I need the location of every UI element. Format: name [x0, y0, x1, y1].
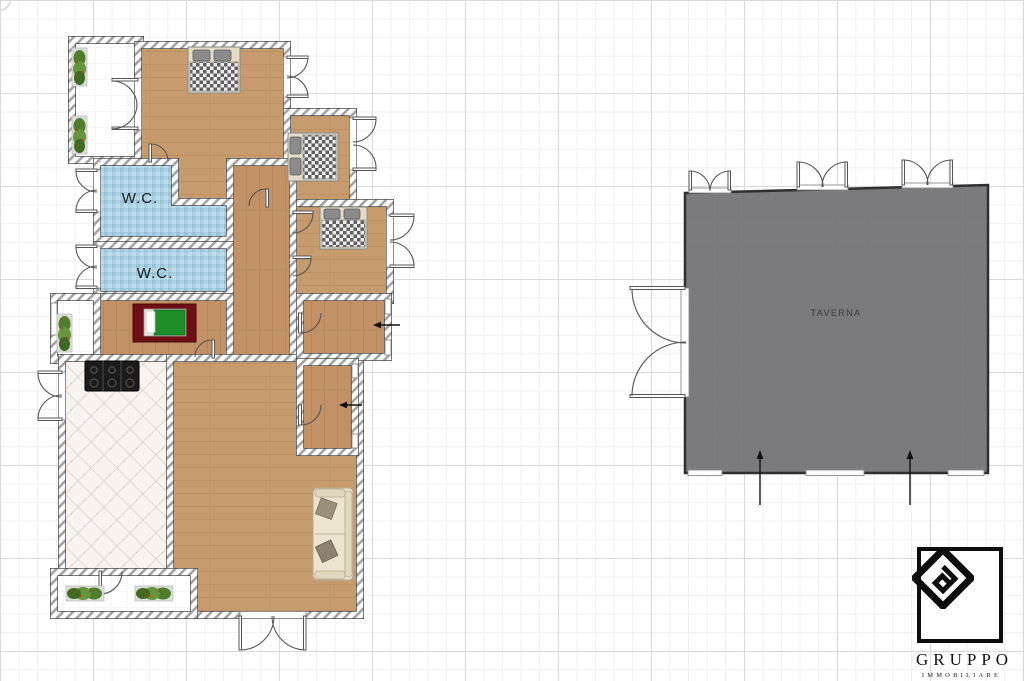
room-corridor — [230, 162, 293, 360]
single-bed-icon-rug-room — [133, 304, 196, 342]
arrow-icon-taverna-2 — [907, 450, 914, 505]
double-bed-icon-bedroom3 — [320, 207, 367, 249]
door-swing-icon-taverna-top-3 — [902, 160, 953, 188]
floorplan-canvas: W.C. W.C. — [0, 0, 1024, 681]
sofa-icon — [313, 488, 353, 580]
taverna-floorplan: TAVERNA — [630, 160, 988, 505]
plant-icon — [135, 586, 173, 601]
logo-monogram-box — [917, 547, 1003, 643]
fg-monogram-icon — [912, 547, 974, 609]
logo-subtitle: IMMOBILIARE — [912, 672, 1008, 679]
door-swing-icon-living-exit — [239, 616, 306, 650]
door-swing-icon-taverna-top-2 — [797, 162, 848, 190]
floorplan-drawing: W.C. W.C. — [0, 0, 1024, 681]
corner-arc-decoration — [0, 0, 10, 10]
arrow-icon-taverna-1 — [757, 450, 764, 505]
taverna-window — [688, 470, 722, 476]
apartment-floorplan: W.C. W.C. — [38, 40, 414, 650]
taverna-room — [685, 185, 988, 473]
room-a — [300, 297, 388, 357]
taverna-window — [948, 470, 984, 476]
double-bed-icon-bedroom2 — [288, 133, 338, 181]
door-swing-icon-taverna-left — [630, 287, 689, 398]
plant-icon — [72, 116, 87, 154]
agency-logo: GRUPPO IMMOBILIARE — [912, 547, 1008, 679]
double-bed-icon-master — [188, 47, 240, 93]
taverna-label: TAVERNA — [811, 308, 862, 318]
plant-icon — [66, 586, 104, 601]
wc2-label: W.C. — [137, 265, 174, 282]
logo-title: GRUPPO — [912, 650, 1008, 670]
wc1-label: W.C. — [122, 190, 159, 207]
door-swing-icon-taverna-top-1 — [689, 171, 731, 193]
plant-icon — [72, 48, 87, 86]
plant-icon — [57, 314, 72, 352]
taverna-window — [806, 470, 864, 476]
stove-icon — [85, 361, 139, 391]
